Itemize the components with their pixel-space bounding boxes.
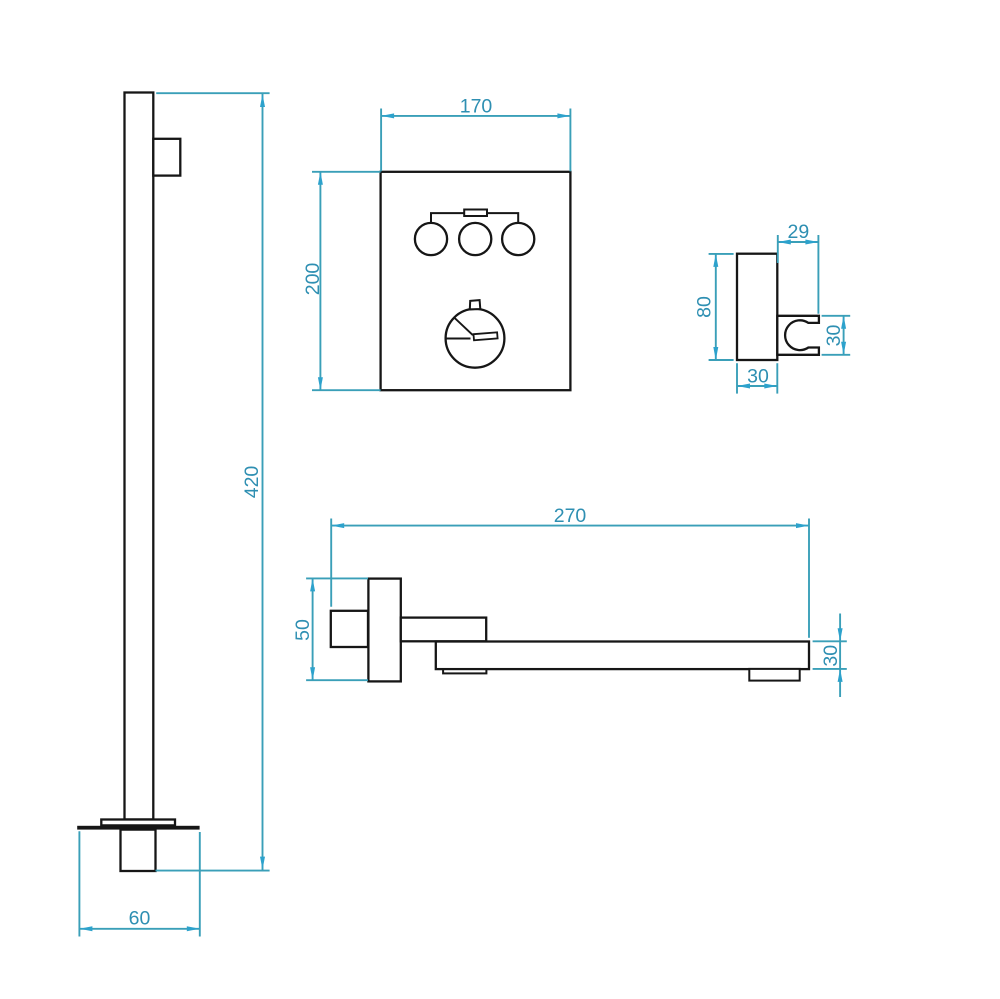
svg-text:60: 60 [129,908,151,930]
svg-text:30: 30 [823,325,845,347]
svg-text:200: 200 [302,263,324,296]
svg-text:170: 170 [460,96,493,118]
svg-text:50: 50 [292,619,314,641]
svg-text:420: 420 [241,466,263,499]
svg-text:30: 30 [747,366,769,388]
svg-text:270: 270 [554,505,587,527]
svg-text:29: 29 [788,221,810,243]
svg-text:30: 30 [820,645,842,667]
svg-text:80: 80 [694,296,716,318]
